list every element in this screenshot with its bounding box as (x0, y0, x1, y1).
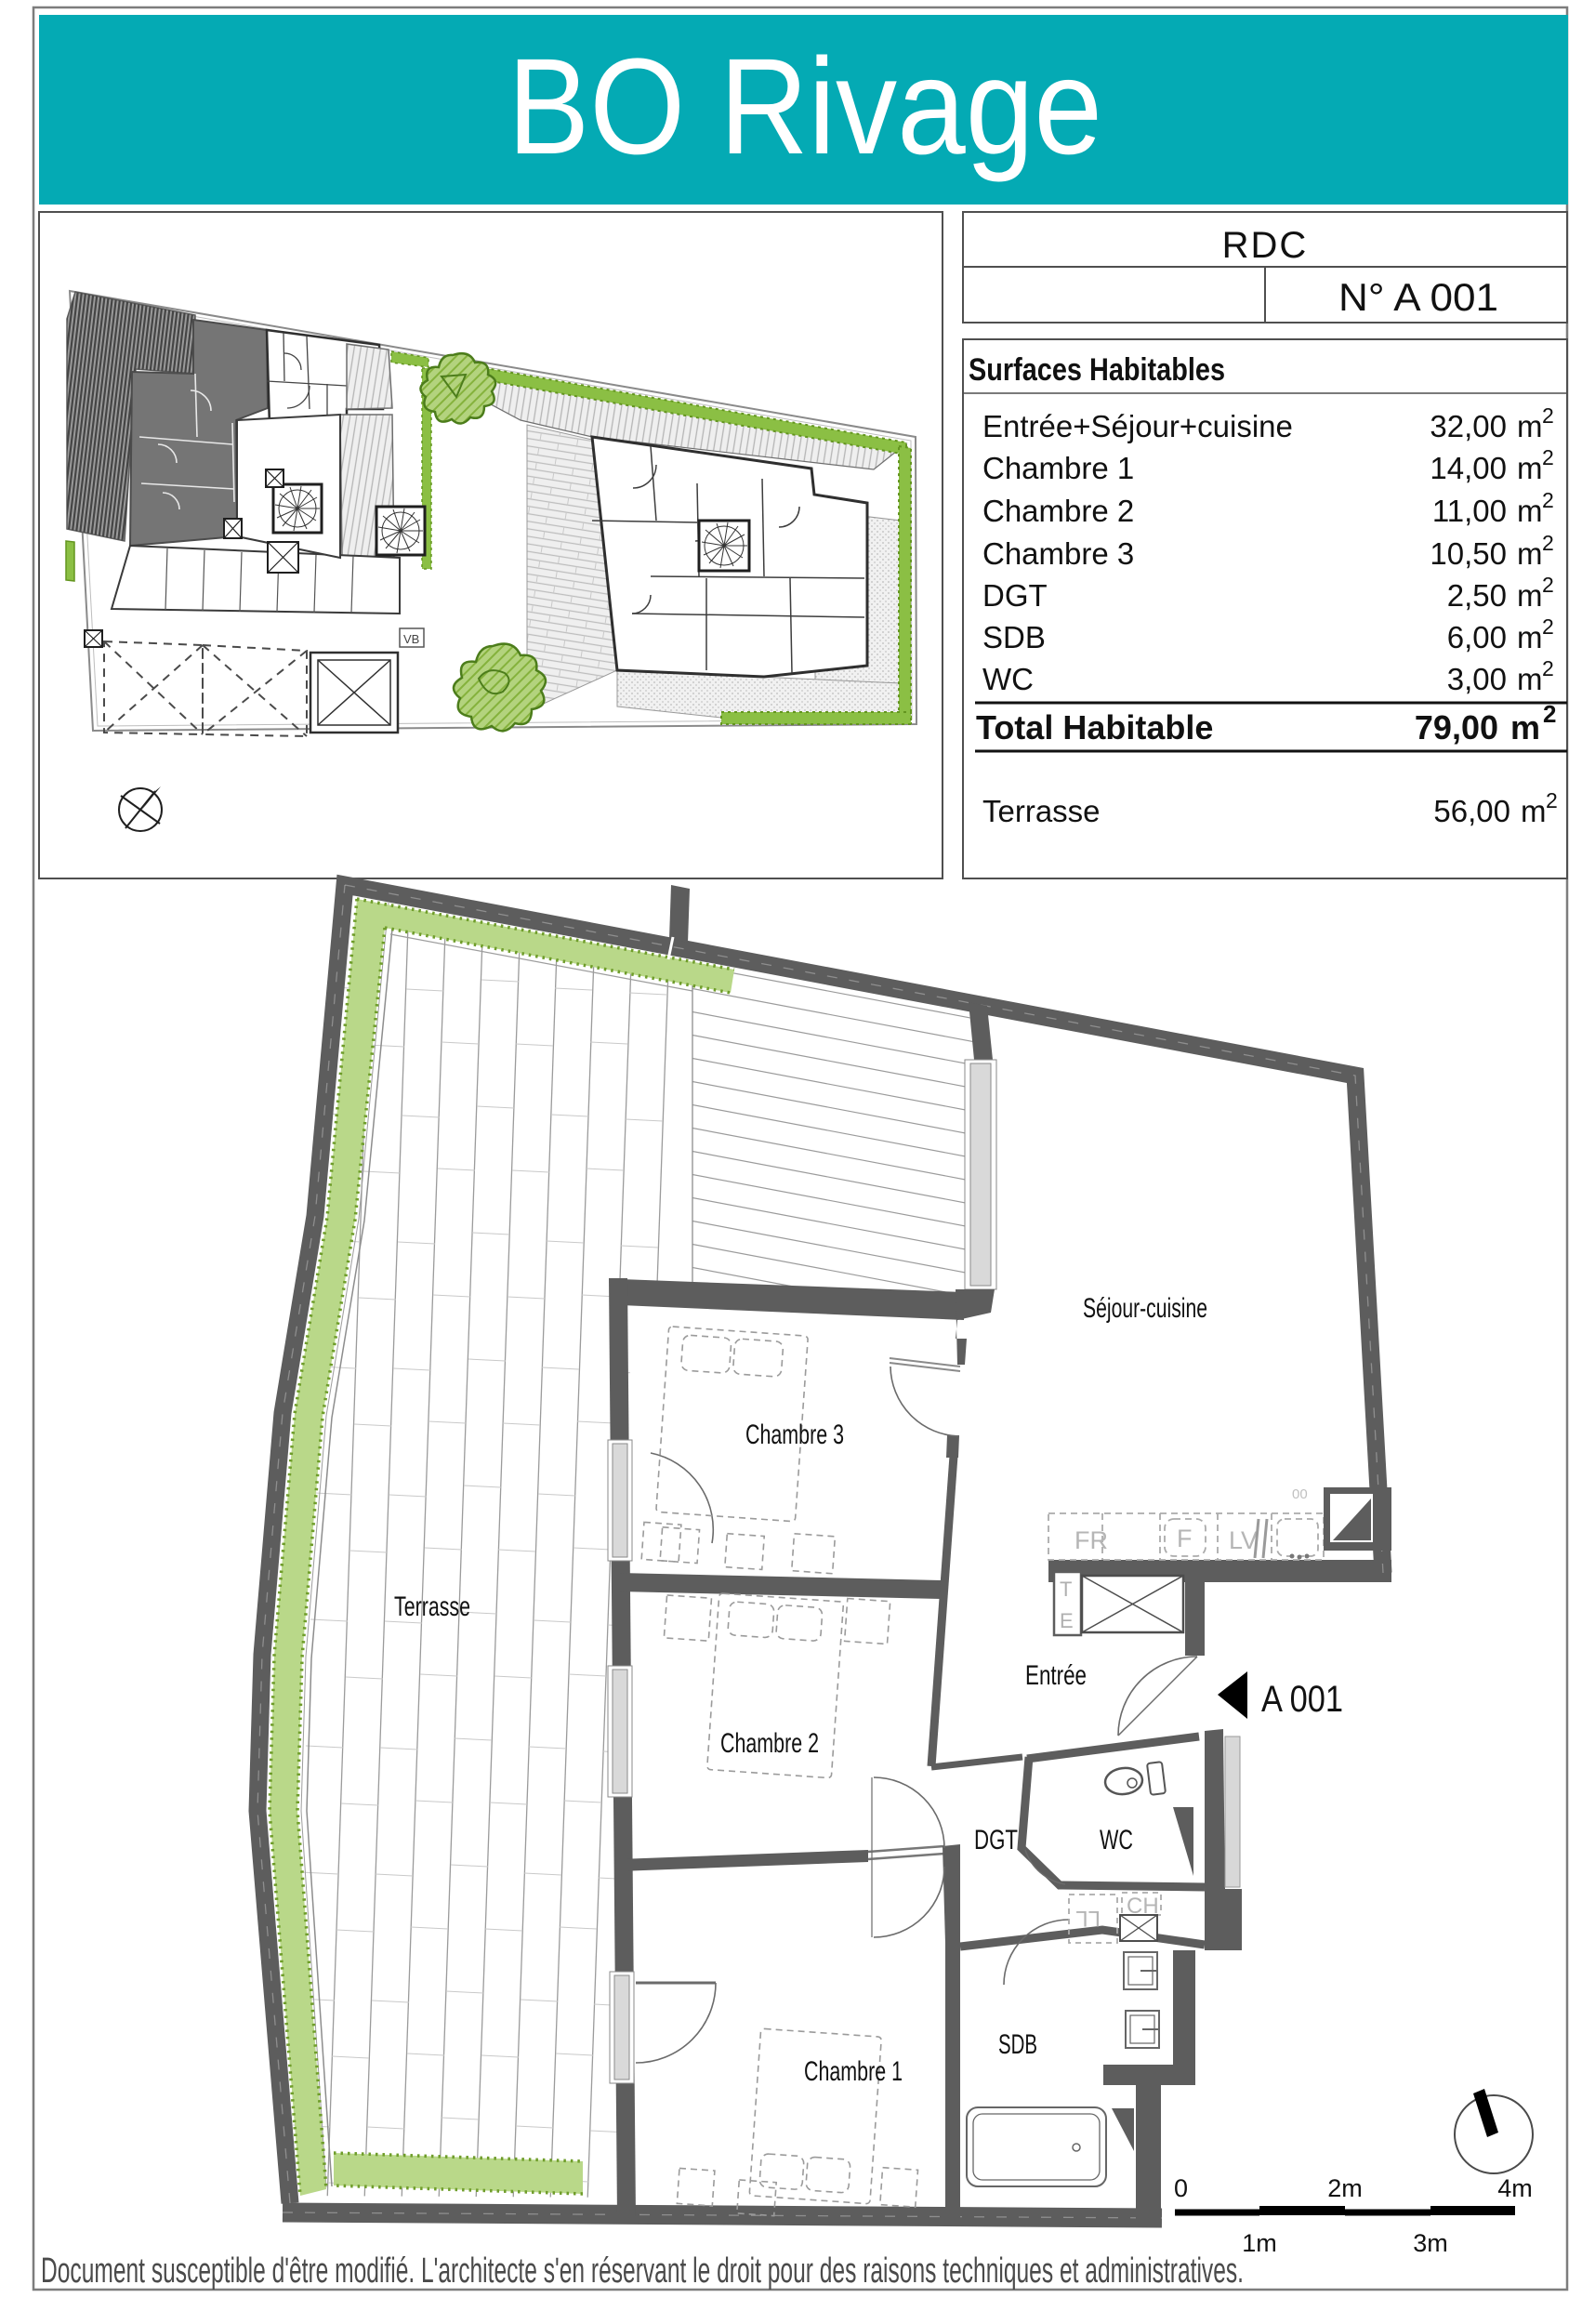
svg-text:2: 2 (1542, 614, 1554, 639)
svg-text:m: m (1517, 662, 1543, 696)
svg-text:Total Habitable: Total Habitable (976, 708, 1213, 746)
svg-text:F: F (1177, 1525, 1193, 1552)
svg-text:Surfaces Habitables: Surfaces Habitables (969, 352, 1225, 388)
svg-text:Entrée+Séjour+cuisine: Entrée+Séjour+cuisine (982, 409, 1293, 443)
svg-text:m: m (1517, 451, 1543, 485)
svg-text:E: E (1060, 1609, 1074, 1632)
svg-text:T: T (1060, 1578, 1072, 1601)
svg-text:m: m (1510, 708, 1540, 746)
svg-text:Chambre 2: Chambre 2 (982, 494, 1134, 528)
svg-text:2,50: 2,50 (1447, 578, 1507, 613)
svg-text:2: 2 (1543, 700, 1556, 728)
svg-text:11,00: 11,00 (1432, 494, 1507, 528)
svg-text:3,00: 3,00 (1447, 662, 1507, 696)
svg-text:SDB: SDB (982, 620, 1046, 654)
svg-text:32,00: 32,00 (1430, 409, 1507, 443)
svg-text:2: 2 (1542, 488, 1554, 512)
svg-text:m: m (1517, 578, 1543, 613)
svg-text:BO Rivage: BO Rivage (508, 31, 1102, 183)
svg-text:N° A 001: N° A 001 (1338, 275, 1498, 319)
svg-text:2: 2 (1546, 788, 1558, 812)
svg-text:2: 2 (1542, 403, 1554, 428)
svg-text:m: m (1517, 409, 1543, 443)
svg-text:Terrasse: Terrasse (394, 1591, 470, 1622)
svg-text:2m: 2m (1327, 2174, 1363, 2202)
svg-text:6,00: 6,00 (1447, 620, 1507, 654)
svg-text:Séjour-cuisine: Séjour-cuisine (1083, 1293, 1207, 1324)
svg-text:1m: 1m (1242, 2229, 1277, 2257)
svg-text:Chambre 1: Chambre 1 (982, 451, 1134, 485)
svg-text:56,00: 56,00 (1433, 794, 1510, 828)
svg-text:m: m (1517, 536, 1543, 571)
svg-text:Terrasse: Terrasse (982, 794, 1101, 828)
svg-text:DGT: DGT (974, 1825, 1018, 1855)
svg-text:WC: WC (982, 662, 1034, 696)
svg-text:LL: LL (1075, 1906, 1101, 1931)
svg-text:2: 2 (1542, 573, 1554, 597)
svg-text:LV: LV (1229, 1526, 1258, 1554)
svg-text:RDC: RDC (1222, 225, 1309, 266)
svg-text:00: 00 (1292, 1486, 1308, 1502)
svg-text:DGT: DGT (982, 578, 1048, 613)
svg-text:0: 0 (1174, 2174, 1188, 2202)
svg-text:10,50: 10,50 (1430, 536, 1507, 571)
svg-text:79,00: 79,00 (1415, 708, 1498, 746)
svg-text:3m: 3m (1413, 2229, 1448, 2257)
svg-text:m: m (1521, 794, 1547, 828)
svg-text:2: 2 (1542, 656, 1554, 680)
svg-text:14,00: 14,00 (1430, 451, 1507, 485)
svg-text:m: m (1517, 494, 1543, 528)
svg-text:Chambre 3: Chambre 3 (745, 1419, 844, 1450)
svg-text:FR: FR (1074, 1526, 1108, 1554)
svg-text:2: 2 (1542, 531, 1554, 555)
svg-text:2: 2 (1542, 445, 1554, 469)
svg-text:m: m (1517, 620, 1543, 654)
svg-text:Document susceptible d'être mo: Document susceptible d'être modifié. L'a… (41, 2251, 1244, 2291)
svg-text:WC: WC (1100, 1825, 1133, 1855)
svg-text:Chambre 2: Chambre 2 (720, 1728, 819, 1759)
svg-text:VB: VB (403, 632, 419, 646)
svg-text:4m: 4m (1497, 2174, 1533, 2202)
svg-text:Chambre 3: Chambre 3 (982, 536, 1134, 571)
svg-text:Chambre 1: Chambre 1 (804, 2056, 903, 2087)
svg-text:SDB: SDB (998, 2029, 1037, 2060)
svg-text:A 001: A 001 (1261, 1679, 1343, 1720)
svg-text:Entrée: Entrée (1025, 1660, 1087, 1691)
